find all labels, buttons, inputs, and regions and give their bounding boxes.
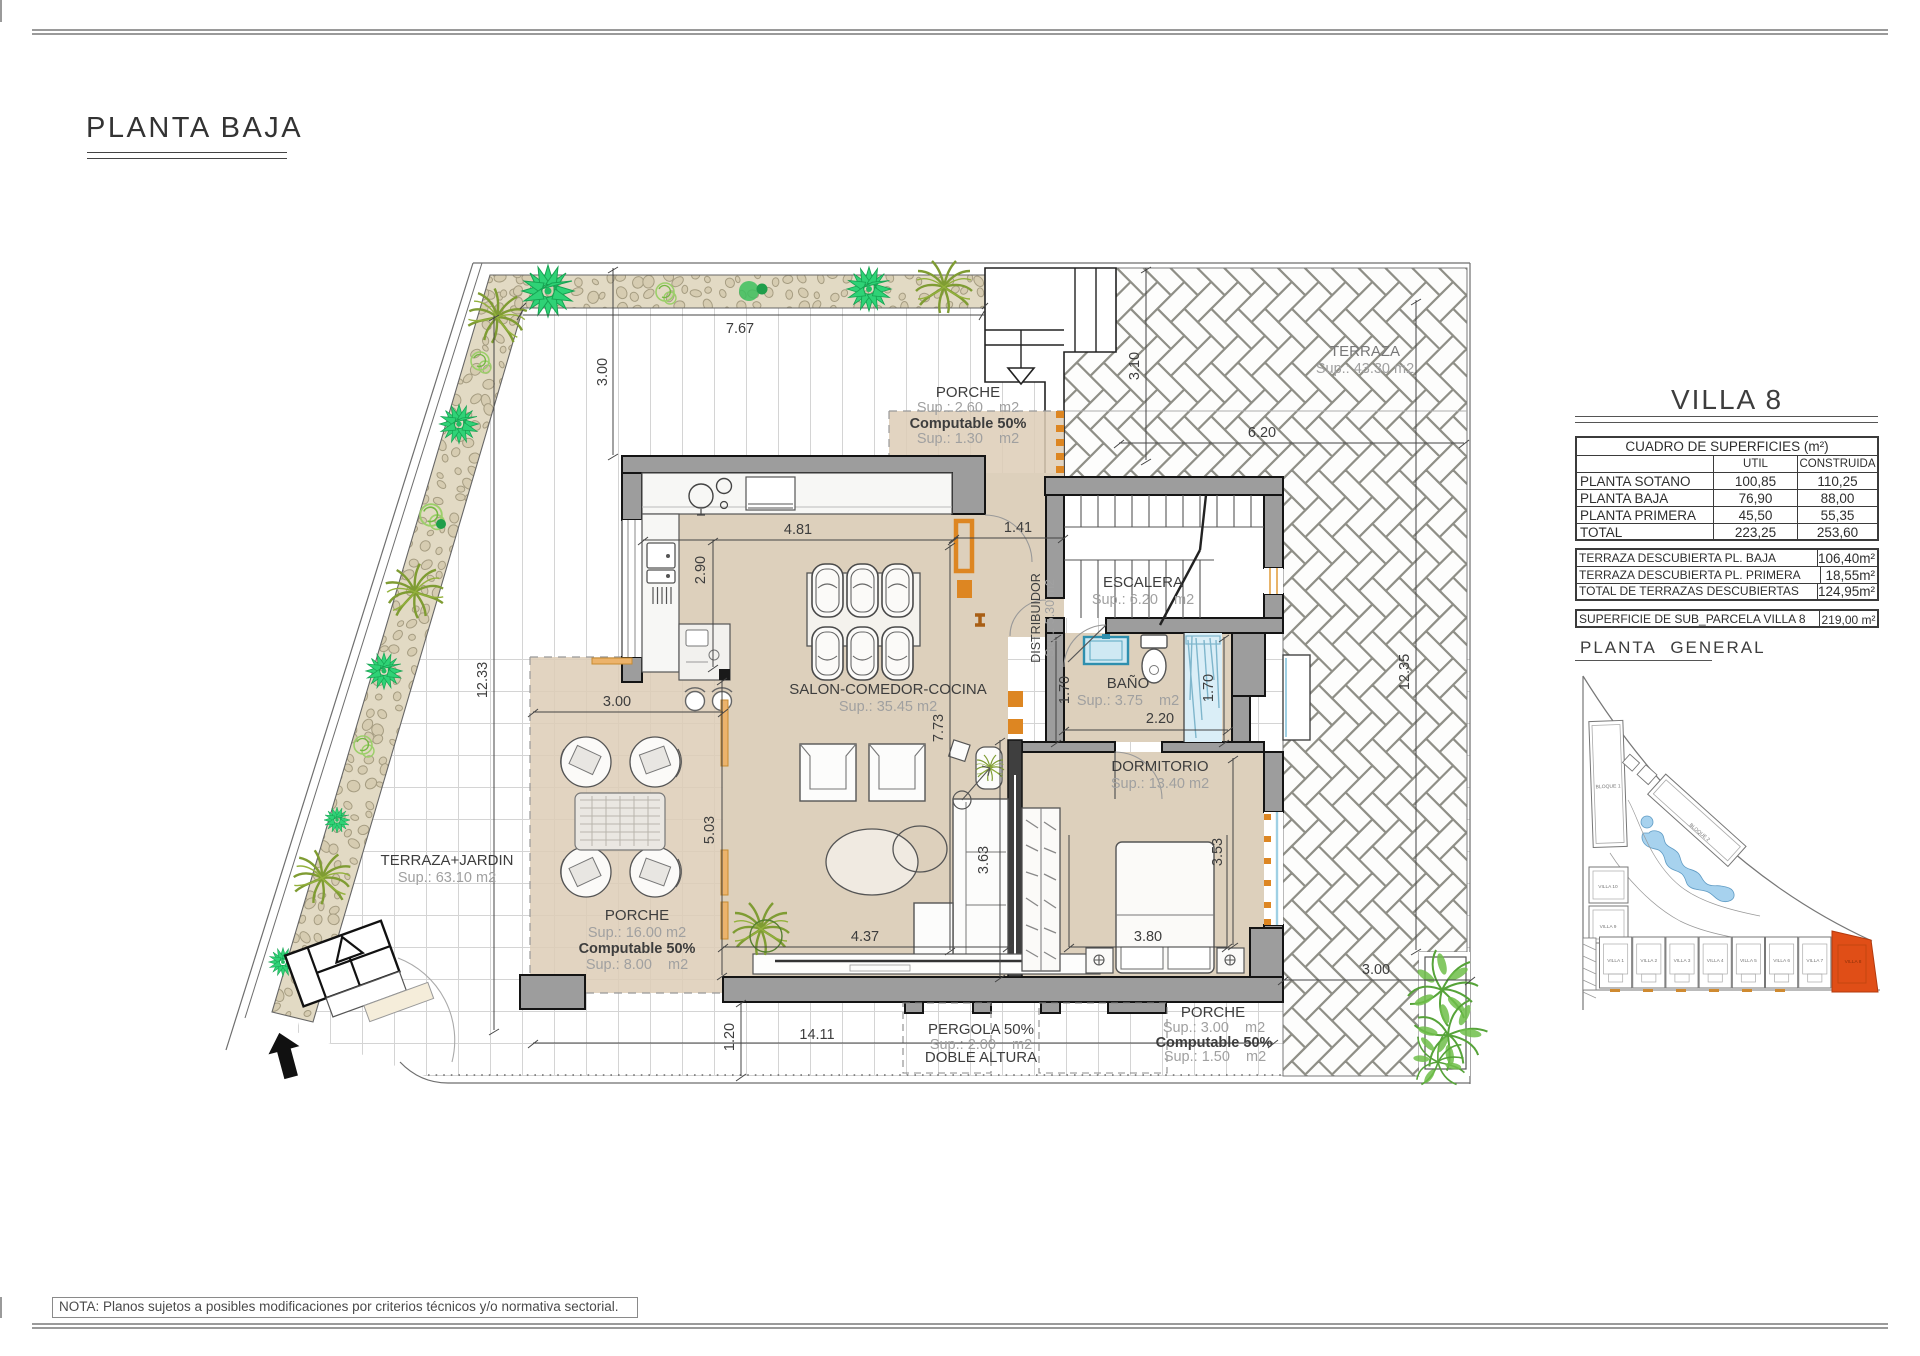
svg-text:12.35: 12.35	[1397, 654, 1413, 690]
svg-text:3.10: 3.10	[1127, 352, 1143, 380]
svg-text:2.90: 2.90	[693, 556, 709, 584]
svg-text:DORMITORIO: DORMITORIO	[1111, 758, 1208, 775]
svg-text:VILLA 3: VILLA 3	[1674, 958, 1691, 964]
svg-text:VILLA 8: VILLA 8	[1845, 959, 1862, 965]
svg-text:Sup.: 16.00 m2: Sup.: 16.00 m2	[588, 925, 686, 941]
svg-text:VILLA 4: VILLA 4	[1707, 958, 1724, 964]
svg-text:Sup.: 63.10 m2: Sup.: 63.10 m2	[398, 870, 496, 886]
svg-text:Computable 50%: Computable 50%	[910, 416, 1027, 432]
svg-text:Sup.: 35.45 m2: Sup.: 35.45 m2	[839, 699, 937, 715]
svg-text:PERGOLA 50%: PERGOLA 50%	[928, 1021, 1034, 1038]
svg-text:DISTRIBUIDOR: DISTRIBUIDOR	[1029, 573, 1043, 663]
svg-text:5.03: 5.03	[702, 816, 718, 844]
svg-text:TERRAZA+JARDIN: TERRAZA+JARDIN	[381, 852, 514, 869]
svg-text:3.00: 3.00	[603, 694, 631, 710]
svg-text:VILLA 7: VILLA 7	[1806, 958, 1823, 964]
svg-text:Sup.: 43.30 m2: Sup.: 43.30 m2	[1316, 361, 1414, 377]
svg-text:3.00: 3.00	[595, 358, 611, 386]
svg-text:12.33: 12.33	[475, 662, 491, 698]
svg-text:Sup.: 3.75 m2: Sup.: 3.75 m2	[1077, 693, 1179, 709]
svg-text:7.67: 7.67	[726, 321, 754, 337]
svg-text:1.70: 1.70	[1057, 676, 1073, 704]
svg-text:ESCALERA: ESCALERA	[1103, 574, 1183, 591]
svg-text:VILLA 5: VILLA 5	[1740, 958, 1757, 964]
svg-text:PORCHE: PORCHE	[936, 384, 1000, 401]
svg-text:VILLA 2: VILLA 2	[1640, 958, 1657, 964]
svg-text:PORCHE: PORCHE	[1181, 1004, 1245, 1021]
svg-text:Computable 50%: Computable 50%	[579, 941, 696, 957]
svg-text:BLOQUE 1: BLOQUE 1	[1596, 784, 1621, 791]
svg-text:Sup.: 13.40 m2: Sup.: 13.40 m2	[1111, 776, 1209, 792]
svg-text:7.73: 7.73	[931, 714, 947, 742]
svg-text:2.20: 2.20	[1146, 711, 1174, 727]
svg-text:Sup.: 3.00 m2: Sup.: 3.00 m2	[1163, 1020, 1265, 1036]
svg-text:Sup.: 5.30 m2: Sup.: 5.30 m2	[1043, 579, 1057, 657]
svg-text:VILLA 9: VILLA 9	[1600, 924, 1617, 930]
svg-text:4.81: 4.81	[784, 522, 812, 538]
svg-text:VILLA 1: VILLA 1	[1607, 958, 1624, 964]
svg-text:BAÑO: BAÑO	[1107, 675, 1150, 692]
svg-text:14.11: 14.11	[799, 1027, 834, 1043]
svg-text:PORCHE: PORCHE	[605, 907, 669, 924]
svg-text:Sup.: 2.00 m2: Sup.: 2.00 m2	[930, 1037, 1032, 1053]
svg-text:1.41: 1.41	[1004, 520, 1032, 536]
svg-text:Sup.: 2.60 m2: Sup.: 2.60 m2	[917, 400, 1019, 416]
svg-text:VILLA 6: VILLA 6	[1773, 958, 1790, 964]
svg-text:3.00: 3.00	[1362, 962, 1390, 978]
svg-text:1.20: 1.20	[722, 1023, 738, 1051]
svg-text:TERRAZA: TERRAZA	[1330, 343, 1400, 360]
svg-text:Sup.: 8.00 m2: Sup.: 8.00 m2	[586, 957, 688, 973]
svg-text:3.80: 3.80	[1134, 929, 1162, 945]
svg-text:SALON-COMEDOR-COCINA: SALON-COMEDOR-COCINA	[789, 681, 987, 698]
svg-text:3.63: 3.63	[976, 846, 992, 874]
svg-text:VILLA 10: VILLA 10	[1598, 884, 1618, 890]
svg-text:Sup.: 6.20 m2: Sup.: 6.20 m2	[1092, 592, 1194, 608]
svg-text:1.70: 1.70	[1201, 674, 1217, 702]
svg-text:3.53: 3.53	[1210, 838, 1226, 866]
svg-text:4.37: 4.37	[851, 929, 879, 945]
svg-text:Sup.: 1.50 m2: Sup.: 1.50 m2	[1164, 1049, 1266, 1065]
svg-text:6.20: 6.20	[1248, 425, 1276, 441]
svg-text:Sup.: 1.30 m2: Sup.: 1.30 m2	[917, 431, 1019, 447]
